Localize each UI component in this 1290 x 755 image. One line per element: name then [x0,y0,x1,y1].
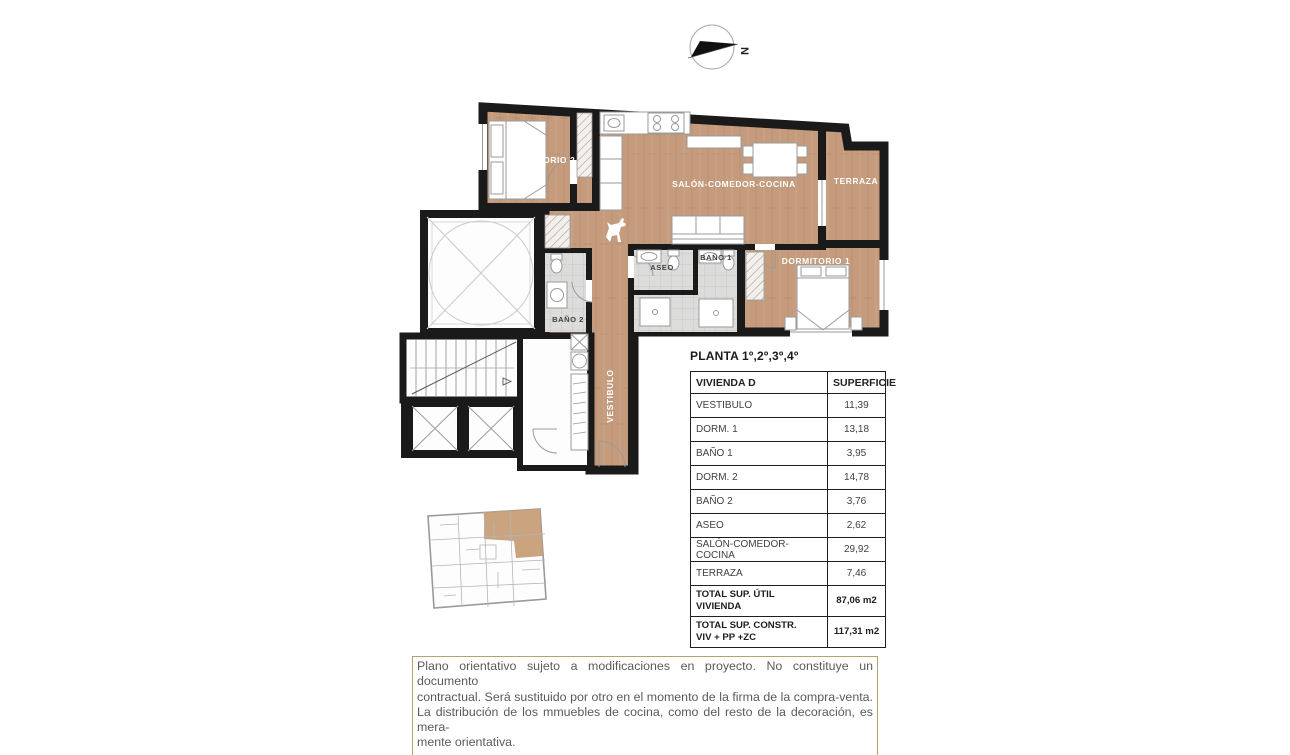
room-name-cell: BAÑO 1 [691,442,828,466]
stove-icon [648,113,684,133]
table-row: SALÓN-COMEDOR-COCINA29,92 [691,538,886,562]
table-row: BAÑO 13,95 [691,442,886,466]
table-total-row: TOTAL SUP. CONSTR.VIV + PP +ZC117,31 m2 [691,616,886,647]
total-label-cell: TOTAL SUP. ÚTIL VIVIENDA [691,586,828,617]
wardrobe-dormitorio2 [577,113,592,177]
landing [520,334,590,468]
room-name-cell: BAÑO 2 [691,490,828,514]
wardrobe-dormitorio1 [746,252,764,300]
area-value-cell: 3,95 [828,442,886,466]
compass-needle-icon [691,41,737,57]
table-row: DORM. 113,18 [691,418,886,442]
table-row: TERRAZA7,46 [691,562,886,586]
label-salon-comedor-cocina: SALÓN-COMEDOR-COCINA [672,178,796,189]
room-name-cell: DORM. 1 [691,418,828,442]
disclaimer-line: contractual. Será sustituido por otro en… [417,690,873,705]
compass-north-label: N [738,47,750,55]
total-label-cell: TOTAL SUP. CONSTR.VIV + PP +ZC [691,616,828,647]
sofa [672,216,744,244]
room-name-cell: DORM. 2 [691,466,828,490]
area-value-cell: 3,76 [828,490,886,514]
label-terraza: TERRAZA [834,176,878,186]
label-dormitorio-1: DORMITORIO 1 [782,256,850,266]
table-total-row: TOTAL SUP. ÚTIL VIVIENDA87,06 m2 [691,586,886,617]
room-name-cell: VESTIBULO [691,394,828,418]
table-row: BAÑO 23,76 [691,490,886,514]
area-value-cell: 29,92 [828,538,886,562]
room-name-cell: SALÓN-COMEDOR-COCINA [691,538,828,562]
table-header-row: VIVIENDA D SUPERFICIE [691,372,886,394]
patio-lightwell [424,214,538,332]
area-value-cell: 7,46 [828,562,886,586]
area-value-cell: 13,18 [828,418,886,442]
label-vestibulo: VESTIBULO [605,369,615,422]
floorplan-page: N [0,0,1290,755]
disclaimer-box: Plano orientativo sujeto a modificacione… [412,656,878,755]
elevators [401,400,525,458]
area-table: VIVIENDA D SUPERFICIE VESTIBULO11,39DORM… [690,371,886,648]
table-row: DORM. 214,78 [691,466,886,490]
disclaimer-line: La distribución de los mmuebles de cocin… [417,705,873,736]
planta-title: PLANTA 1º,2º,3º,4º [690,349,886,363]
label-bano-2: BAÑO 2 [552,315,584,324]
area-value-cell: 2,62 [828,514,886,538]
area-value-cell: 11,39 [828,394,886,418]
sideboard [687,136,741,148]
area-table-block: PLANTA 1º,2º,3º,4º VIVIENDA D SUPERFICIE… [690,349,886,648]
header-vivienda: VIVIENDA D [691,372,828,394]
disclaimer-line: Plano orientativo sujeto a modificacione… [417,659,873,690]
total-value-cell: 117,31 m2 [828,616,886,647]
label-aseo: ASEO [650,263,674,272]
hall-closet [545,215,570,248]
compass-rose: N [688,25,750,69]
room-name-cell: ASEO [691,514,828,538]
room-name-cell: TERRAZA [691,562,828,586]
label-dormitorio-2: DORMITORIO 2 [507,155,575,165]
total-value-cell: 87,06 m2 [828,586,886,617]
key-plan [428,509,546,608]
table-row: VESTIBULO11,39 [691,394,886,418]
floor-plan-drawing: N [0,0,1290,755]
stairs [403,336,521,400]
header-superficie: SUPERFICIE [828,372,886,394]
label-bano-1: BAÑO 1 [700,253,732,262]
table-row: ASEO2,62 [691,514,886,538]
dining-table [743,143,807,177]
area-value-cell: 14,78 [828,466,886,490]
disclaimer-line: mente orientativa. [417,735,873,750]
washer-icon [571,352,588,370]
